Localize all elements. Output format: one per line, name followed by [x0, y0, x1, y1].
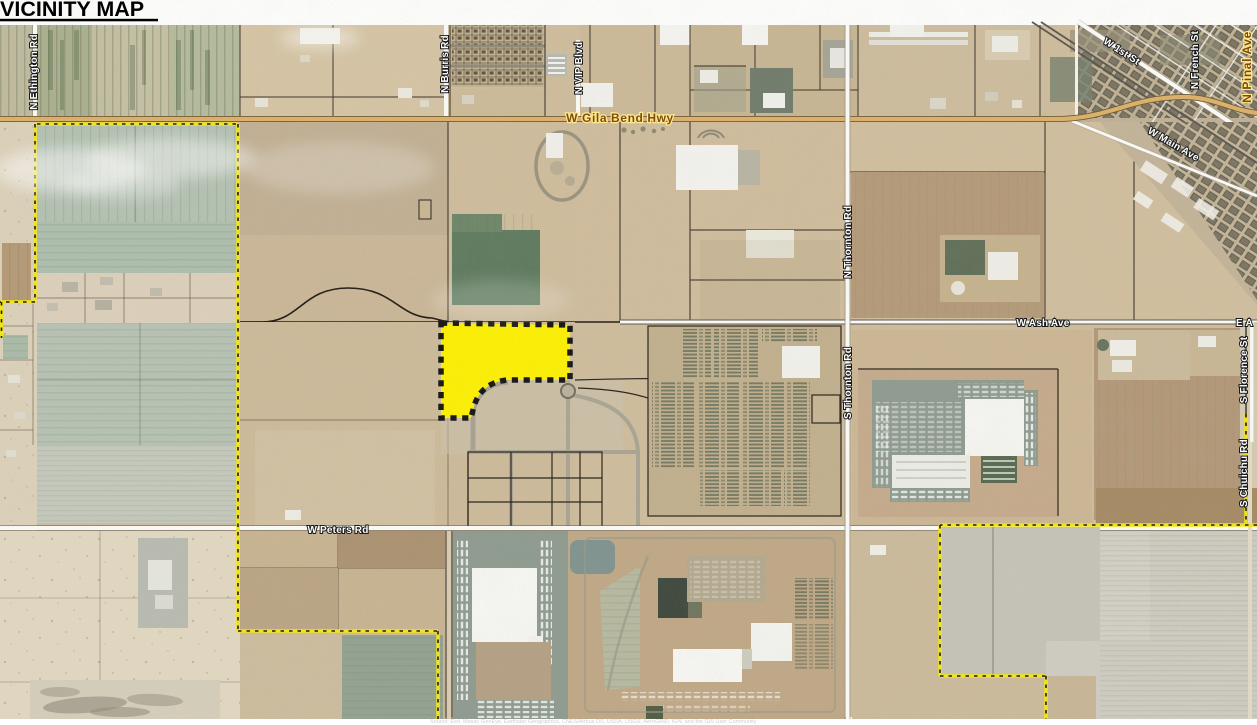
- svg-text:N Pinal Ave: N Pinal Ave: [1240, 31, 1254, 103]
- svg-text:VICINITY MAP: VICINITY MAP: [0, 0, 144, 21]
- svg-text:Source: Esri, Maxar, GeoEye, E: Source: Esri, Maxar, GeoEye, Earthstar G…: [430, 719, 757, 725]
- svg-text:E A: E A: [1236, 318, 1253, 329]
- svg-text:W Gila Bend Hwy: W Gila Bend Hwy: [566, 111, 674, 125]
- svg-text:N Thornton Rd: N Thornton Rd: [843, 206, 854, 279]
- svg-text:S Chuichu Rd: S Chuichu Rd: [1239, 439, 1250, 507]
- svg-text:S Florence St: S Florence St: [1239, 336, 1250, 403]
- svg-text:N Burris Rd: N Burris Rd: [440, 35, 451, 93]
- svg-text:S Thornton Rd: S Thornton Rd: [843, 347, 854, 419]
- svg-text:N Ethington Rd: N Ethington Rd: [29, 34, 40, 110]
- svg-text:N French St: N French St: [1190, 30, 1201, 89]
- svg-text:N VIP Blvd: N VIP Blvd: [574, 42, 585, 94]
- svg-text:W Ash Ave: W Ash Ave: [1017, 318, 1070, 329]
- svg-text:W Peters Rd: W Peters Rd: [307, 525, 368, 536]
